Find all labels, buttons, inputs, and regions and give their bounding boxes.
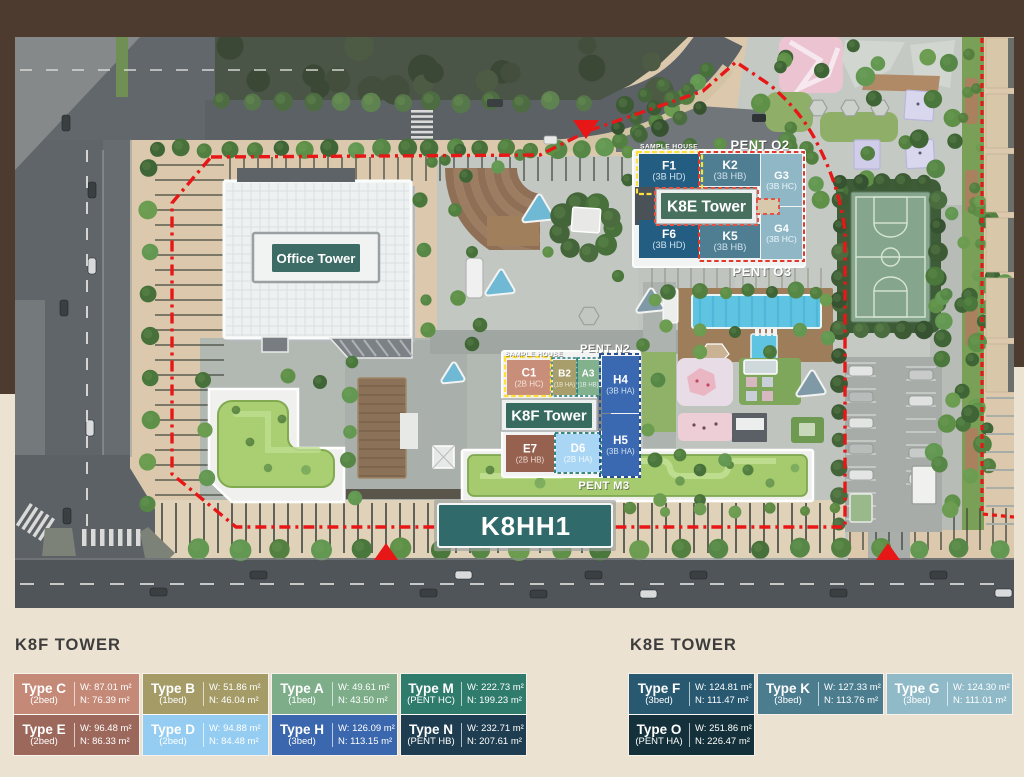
- svg-text:PENT N2: PENT N2: [580, 343, 630, 355]
- svg-text:D6: D6: [571, 443, 586, 455]
- svg-text:K8F Tower: K8F Tower: [511, 408, 587, 425]
- svg-text:(3B HB): (3B HB): [714, 242, 747, 252]
- svg-text:F1: F1: [662, 159, 676, 173]
- svg-text:(1B HA): (1B HA): [554, 383, 575, 389]
- svg-text:B2: B2: [558, 369, 571, 380]
- svg-text:SAMPLE HOUSE: SAMPLE HOUSE: [640, 144, 698, 151]
- svg-text:(2B HC): (2B HC): [515, 380, 544, 389]
- svg-text:(3B HA): (3B HA): [606, 387, 635, 396]
- svg-text:K5: K5: [722, 229, 738, 243]
- svg-text:Office Tower: Office Tower: [277, 251, 356, 266]
- svg-text:(1B HB): (1B HB): [577, 383, 598, 389]
- svg-text:H5: H5: [613, 435, 628, 447]
- svg-text:SAMPLE HOUSE: SAMPLE HOUSE: [505, 351, 563, 358]
- svg-text:E7: E7: [523, 444, 537, 456]
- svg-text:K8E Tower: K8E Tower: [667, 199, 746, 216]
- svg-text:PENT O2: PENT O2: [730, 138, 789, 153]
- svg-text:(3B HD): (3B HD): [652, 172, 685, 182]
- svg-text:PENT M3: PENT M3: [578, 480, 629, 492]
- svg-text:PENT O3: PENT O3: [732, 264, 791, 279]
- svg-text:F6: F6: [662, 227, 676, 241]
- svg-text:K8HH1: K8HH1: [481, 511, 571, 541]
- svg-text:(3B HC): (3B HC): [766, 234, 797, 244]
- svg-text:(3B HB): (3B HB): [714, 171, 747, 181]
- svg-text:H4: H4: [613, 375, 628, 387]
- svg-text:K2: K2: [722, 158, 738, 172]
- svg-text:C1: C1: [522, 368, 537, 380]
- svg-text:(3B HA): (3B HA): [606, 447, 635, 456]
- svg-text:(3B HC): (3B HC): [766, 181, 797, 191]
- svg-text:A3: A3: [582, 369, 595, 380]
- svg-text:(3B HD): (3B HD): [652, 240, 685, 250]
- svg-text:(2B HA): (2B HA): [564, 455, 593, 464]
- svg-text:(2B HB): (2B HB): [516, 456, 545, 465]
